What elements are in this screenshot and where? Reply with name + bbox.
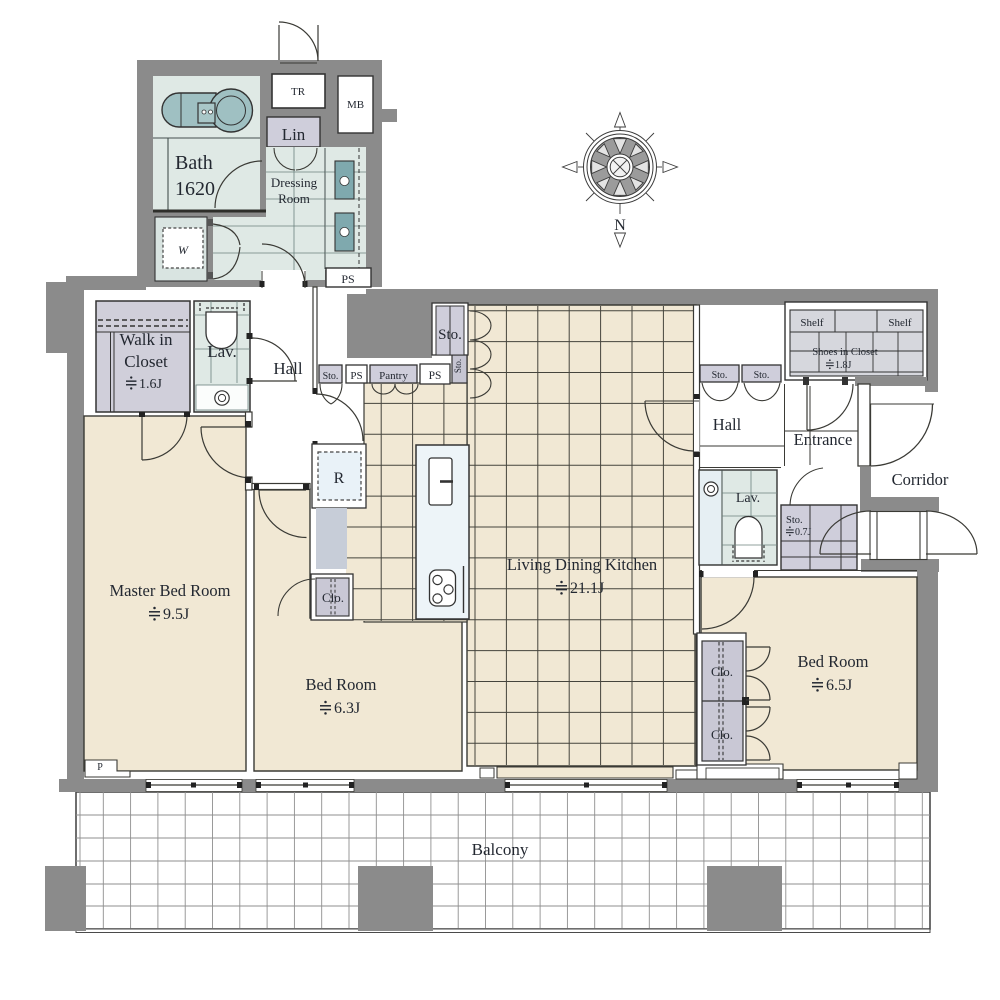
svg-text:Lav.: Lav. [207,342,237,361]
svg-text:N: N [614,217,626,234]
svg-text:Pantry: Pantry [379,370,408,382]
svg-text:6.3J: 6.3J [334,700,360,717]
svg-text:Bed Room: Bed Room [797,652,868,671]
svg-text:Bath: Bath [175,152,213,174]
svg-text:Room: Room [278,191,310,206]
svg-text:TR: TR [291,86,306,98]
svg-text:Lav.: Lav. [736,491,760,506]
svg-text:1620: 1620 [175,178,215,200]
svg-text:R: R [334,470,345,487]
svg-text:9.5J: 9.5J [163,606,189,623]
svg-text:1.6J: 1.6J [139,377,163,392]
svg-text:0.7J: 0.7J [795,527,812,538]
svg-text:Shoes in Closet: Shoes in Closet [812,347,877,358]
svg-text:Dressing: Dressing [271,175,318,190]
svg-text:PS: PS [429,370,442,382]
svg-text:P: P [97,762,103,773]
svg-text:Sto.: Sto. [786,515,803,526]
svg-text:Sto.: Sto. [438,327,462,343]
svg-text:21.1J: 21.1J [570,580,604,597]
svg-text:Master Bed Room: Master Bed Room [110,581,231,600]
svg-text:Closet: Closet [124,352,168,371]
svg-text:6.5J: 6.5J [826,677,852,694]
svg-text:Entrance: Entrance [794,430,853,449]
svg-text:Balcony: Balcony [472,840,529,859]
svg-text:PS: PS [350,370,362,382]
svg-text:Clo.: Clo. [711,727,733,742]
svg-text:Clo.: Clo. [711,664,733,679]
svg-text:Hall: Hall [273,359,303,378]
svg-text:Sto.: Sto. [712,370,728,381]
svg-text:Clo.: Clo. [322,590,344,605]
svg-text:PS: PS [341,272,354,286]
svg-text:Shelf: Shelf [888,317,912,329]
svg-text:Lin: Lin [282,125,306,144]
svg-text:Shelf: Shelf [800,317,824,329]
svg-text:W: W [178,243,189,257]
svg-text:Sto.: Sto. [323,371,339,382]
svg-text:Bed Room: Bed Room [305,675,376,694]
svg-text:MB: MB [347,99,364,111]
svg-text:Walk in: Walk in [120,330,173,349]
svg-text:Sto.: Sto. [754,370,770,381]
svg-text:Hall: Hall [713,415,742,434]
svg-text:Living Dining Kitchen: Living Dining Kitchen [507,555,657,574]
svg-text:Sto.: Sto. [453,359,463,373]
svg-text:1.8J: 1.8J [835,360,852,371]
svg-text:Corridor: Corridor [892,470,949,489]
